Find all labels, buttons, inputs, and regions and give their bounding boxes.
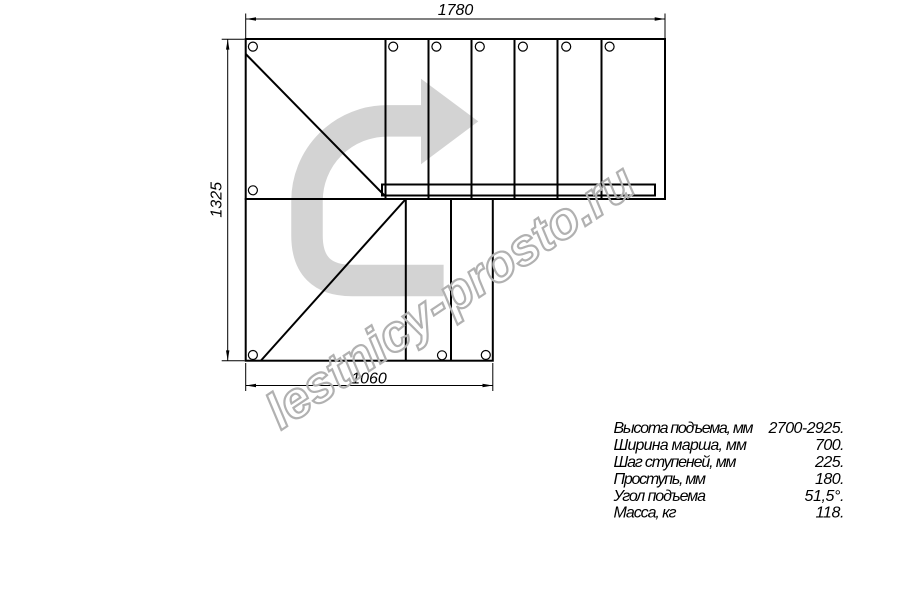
svg-text:225.: 225. xyxy=(814,454,845,471)
svg-text:118.: 118. xyxy=(816,505,845,522)
svg-text:2700-2925.: 2700-2925. xyxy=(768,420,845,437)
svg-text:1325: 1325 xyxy=(209,182,226,218)
svg-text:Высота подъема, мм: Высота подъема, мм xyxy=(614,420,754,437)
svg-text:Шаг ступеней, мм: Шаг ступеней, мм xyxy=(614,454,737,471)
svg-text:Угол подъема: Угол подъема xyxy=(613,488,707,505)
svg-text:700.: 700. xyxy=(815,437,845,454)
svg-text:Масса, кг: Масса, кг xyxy=(614,505,677,522)
svg-text:180.: 180. xyxy=(815,471,845,488)
svg-text:51,5°.: 51,5°. xyxy=(805,488,845,505)
svg-text:Ширина марша, мм: Ширина марша, мм xyxy=(614,437,748,454)
svg-text:Проступь, мм: Проступь, мм xyxy=(614,471,707,488)
svg-text:1780: 1780 xyxy=(438,2,474,19)
